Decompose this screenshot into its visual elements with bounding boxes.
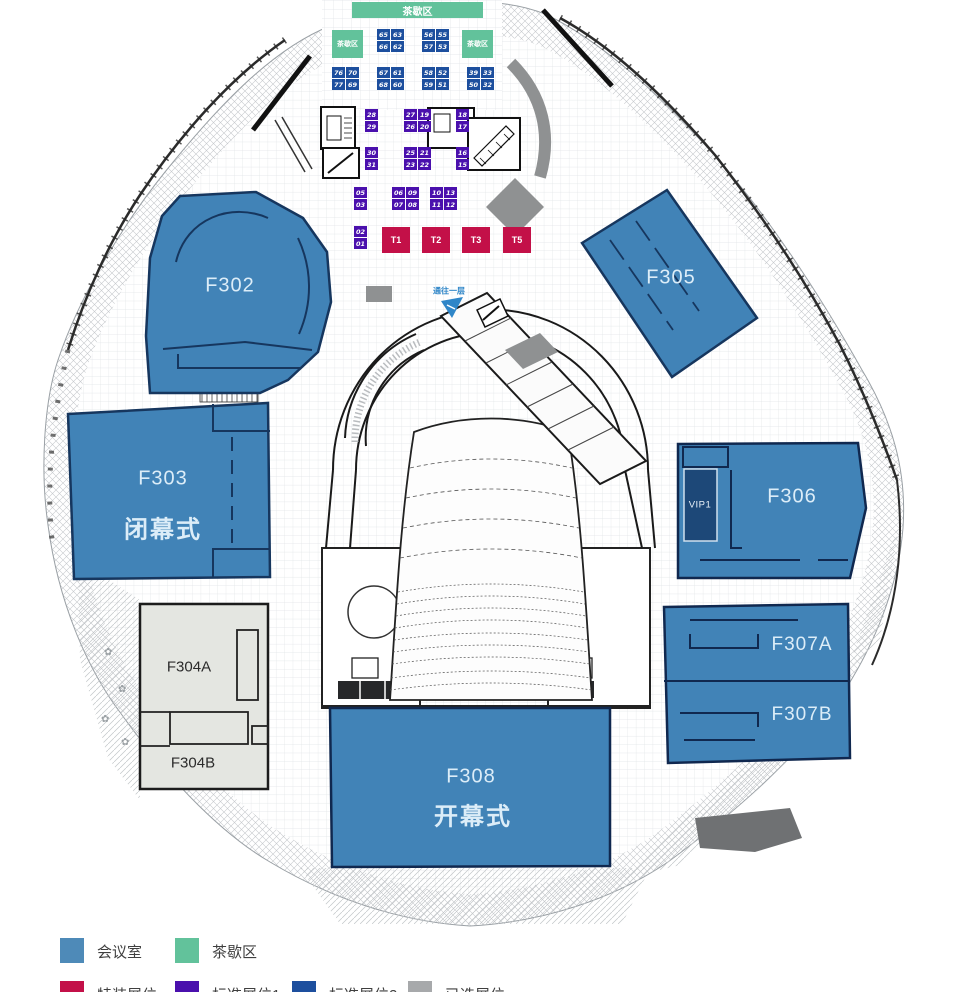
booth-22[interactable]: 22 xyxy=(418,159,431,170)
booth-30[interactable]: 30 xyxy=(365,147,378,158)
booth-77[interactable]: 77 xyxy=(332,79,345,90)
legend-swatch xyxy=(60,981,84,992)
svg-text:✿: ✿ xyxy=(118,684,126,695)
booth-57[interactable]: 57 xyxy=(422,41,435,52)
booth-56[interactable]: 56 xyxy=(422,29,435,40)
booth-10[interactable]: 10 xyxy=(430,187,443,198)
room-vip1[interactable] xyxy=(684,469,717,541)
booth-61[interactable]: 61 xyxy=(391,67,404,78)
booth-13[interactable]: 13 xyxy=(444,187,457,198)
booth-76[interactable]: 76 xyxy=(332,67,345,78)
booth-31[interactable]: 31 xyxy=(365,159,378,170)
booth-67[interactable]: 67 xyxy=(377,67,390,78)
booth-06[interactable]: 06 xyxy=(392,187,405,198)
booth-62[interactable]: 62 xyxy=(391,41,404,52)
tea-area-0: 茶歇区 xyxy=(352,2,483,18)
svg-text:✿: ✿ xyxy=(121,737,129,748)
legend-label: 茶歇区 xyxy=(212,941,257,962)
booth-07[interactable]: 07 xyxy=(392,199,405,210)
booth-T2[interactable]: T2 xyxy=(422,227,450,253)
room-f304[interactable] xyxy=(140,604,268,789)
legend-swatch xyxy=(292,981,316,992)
booth-18[interactable]: 18 xyxy=(456,109,469,120)
base-map: ✿ ✿ ✿ ✿ xyxy=(0,0,958,992)
booth-63[interactable]: 63 xyxy=(391,29,404,40)
booth-19[interactable]: 19 xyxy=(418,109,431,120)
room-f302[interactable] xyxy=(146,192,331,393)
legend-label: 标准展位1 xyxy=(212,984,280,992)
booth-17[interactable]: 17 xyxy=(456,121,469,132)
booth-60[interactable]: 60 xyxy=(391,79,404,90)
svg-text:✿: ✿ xyxy=(101,714,109,725)
booth-25[interactable]: 25 xyxy=(404,147,417,158)
booth-T3[interactable]: T3 xyxy=(462,227,490,253)
tea-area-1: 茶歇区 xyxy=(332,30,363,58)
booth-11[interactable]: 11 xyxy=(430,199,443,210)
booth-26[interactable]: 26 xyxy=(404,121,417,132)
booth-28[interactable]: 28 xyxy=(365,109,378,120)
booth-08[interactable]: 08 xyxy=(406,199,419,210)
booth-03[interactable]: 03 xyxy=(354,199,367,210)
booth-21[interactable]: 21 xyxy=(418,147,431,158)
room-f303[interactable] xyxy=(68,403,270,579)
booth-51[interactable]: 51 xyxy=(436,79,449,90)
legend-swatch xyxy=(175,981,199,992)
legend-label: 标准展位2 xyxy=(329,984,397,992)
gray-block xyxy=(366,286,392,302)
legend-label: 已选展位 xyxy=(445,984,505,992)
booth-20[interactable]: 20 xyxy=(418,121,431,132)
booth-65[interactable]: 65 xyxy=(377,29,390,40)
legend-swatch xyxy=(175,938,199,963)
legend-label: 特装展位 xyxy=(97,984,157,992)
booth-09[interactable]: 09 xyxy=(406,187,419,198)
svg-text:✿: ✿ xyxy=(104,647,112,658)
booth-23[interactable]: 23 xyxy=(404,159,417,170)
legend-swatch xyxy=(408,981,432,992)
booth-16[interactable]: 16 xyxy=(456,147,469,158)
booth-52[interactable]: 52 xyxy=(436,67,449,78)
booth-39[interactable]: 39 xyxy=(467,67,480,78)
auditorium-seating xyxy=(390,419,592,701)
room-f308[interactable] xyxy=(330,708,610,867)
booth-59[interactable]: 59 xyxy=(422,79,435,90)
booth-05[interactable]: 05 xyxy=(354,187,367,198)
booth-69[interactable]: 69 xyxy=(346,79,359,90)
booth-15[interactable]: 15 xyxy=(456,159,469,170)
booth-29[interactable]: 29 xyxy=(365,121,378,132)
booth-50[interactable]: 50 xyxy=(467,79,480,90)
booth-T5[interactable]: T5 xyxy=(503,227,531,253)
booth-01[interactable]: 01 xyxy=(354,238,367,249)
booth-32[interactable]: 32 xyxy=(481,79,494,90)
booth-02[interactable]: 02 xyxy=(354,226,367,237)
booth-68[interactable]: 68 xyxy=(377,79,390,90)
booth-33[interactable]: 33 xyxy=(481,67,494,78)
booth-12[interactable]: 12 xyxy=(444,199,457,210)
legend-swatch xyxy=(60,938,84,963)
booth-70[interactable]: 70 xyxy=(346,67,359,78)
booth-27[interactable]: 27 xyxy=(404,109,417,120)
tea-area-2: 茶歇区 xyxy=(462,30,493,58)
legend-label: 会议室 xyxy=(97,941,142,962)
booth-58[interactable]: 58 xyxy=(422,67,435,78)
floor-plan-page: ✿ ✿ ✿ ✿ xyxy=(0,0,958,992)
booth-53[interactable]: 53 xyxy=(436,41,449,52)
booth-66[interactable]: 66 xyxy=(377,41,390,52)
booth-55[interactable]: 55 xyxy=(436,29,449,40)
booth-T1[interactable]: T1 xyxy=(382,227,410,253)
